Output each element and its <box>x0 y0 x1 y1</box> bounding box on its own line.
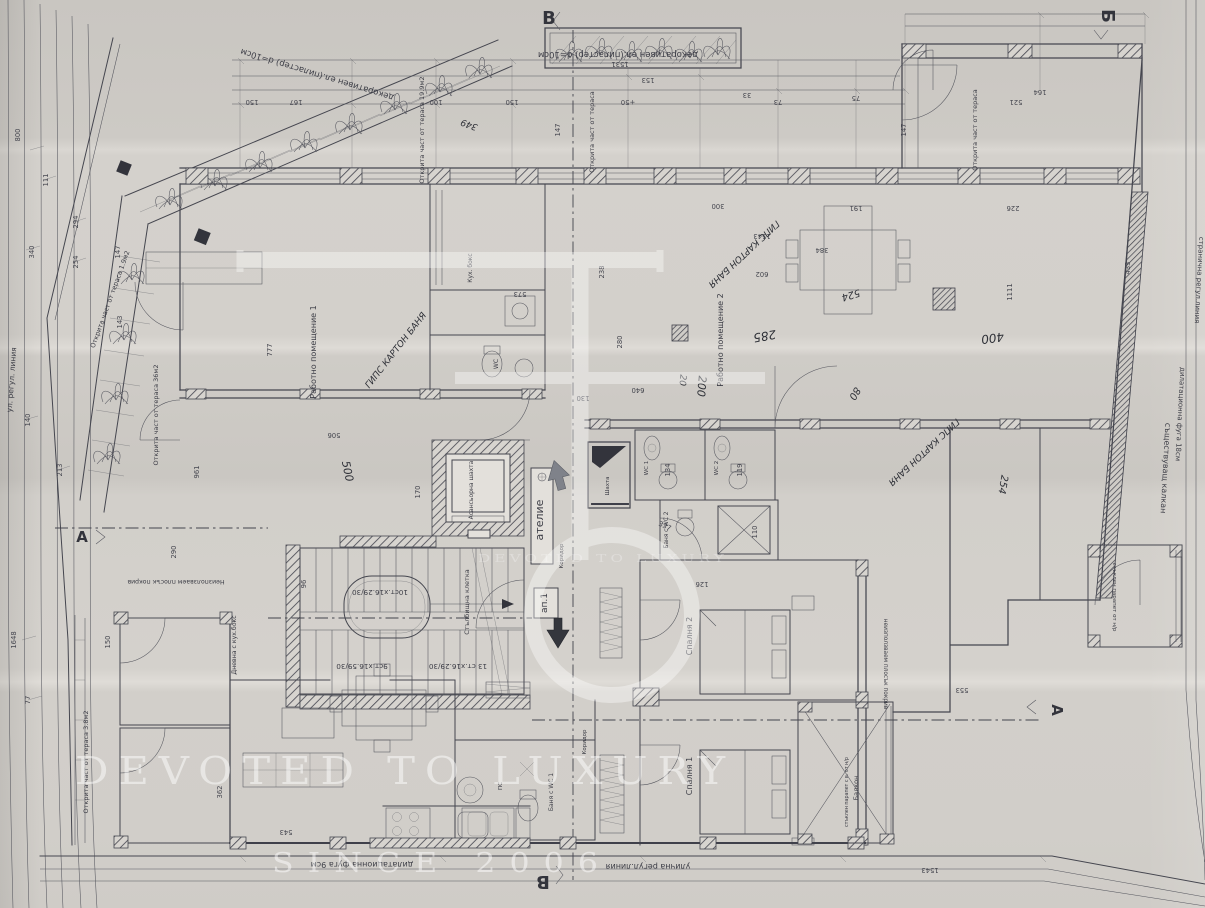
dim-text: 1648 <box>10 631 18 648</box>
dim-text: 134 <box>664 464 672 477</box>
dim-text: 111 <box>42 174 50 187</box>
hand-text: 285 <box>752 327 777 345</box>
top-right-wing <box>893 44 1142 192</box>
interior-walls <box>146 184 1110 440</box>
dim-text: 1543 <box>921 866 938 874</box>
lbl-text: Открита част от тераса <box>971 89 979 171</box>
dim-text: 167 <box>290 98 303 106</box>
section-marker-v-top: В <box>542 8 556 29</box>
dim-text: 226 <box>1007 204 1020 212</box>
dim-text: 506 <box>328 431 341 439</box>
dim-text: 100 <box>430 98 443 106</box>
watermark-echo: DEVOTED TO LUXURY <box>478 552 728 565</box>
lbl-text: Баня с WC 2 <box>664 511 670 548</box>
hand-text: 400 <box>980 329 1005 346</box>
dim-text: 164 <box>1034 88 1047 96</box>
lbl-text: неизползваем плосък покрив <box>882 619 888 710</box>
lbl-text: Балкон <box>852 776 860 801</box>
hand-text: 254 <box>995 474 1009 495</box>
section-marker-a-right: А <box>1048 704 1066 716</box>
rooms-left-bottom <box>75 612 232 848</box>
lbl-text: Открита част от тераса 36м2 <box>152 365 160 466</box>
dim-text: 294 <box>72 216 80 229</box>
dim-text: 777 <box>266 344 274 357</box>
dim-text: 521 <box>1010 98 1023 106</box>
watermark-line1: DEVOTED TO LUXURY <box>75 749 735 793</box>
dim-text: 147 <box>554 124 562 137</box>
lbl-text: ул. регул. линия <box>5 347 19 413</box>
dim-text: 602 <box>756 270 769 278</box>
scanned-floor-plan: 167150100150+507375164153153133521226191… <box>0 0 1205 908</box>
dim-text: 75 <box>852 94 861 102</box>
north-facade-wall <box>180 168 1140 184</box>
dim-text: +50 <box>621 98 635 106</box>
floor-plan-svg: 167150100150+507375164153153133521226191… <box>0 0 1205 908</box>
lbl-text: Асансьорна шахта <box>468 460 475 519</box>
dim-text: 110 <box>751 526 759 539</box>
lbl-text: Открита част от тераса 19.9м2 <box>418 76 426 183</box>
lbl-text: странична регул.линия <box>1193 237 1205 324</box>
lbl-text: улична регул.линия <box>606 862 691 871</box>
dim-text: 96 <box>300 580 308 589</box>
party-wall-calkan <box>1096 0 1205 880</box>
dim-text: 143 <box>116 316 124 329</box>
dim-text: 150 <box>246 98 259 106</box>
dim-text: 961 <box>193 466 201 479</box>
duct-shaft <box>588 442 630 508</box>
elevator-shaft <box>432 440 524 538</box>
dim-text: 150 <box>104 636 112 649</box>
dim-text: 553 <box>956 686 969 694</box>
lbl-text: стъклен парапет от н/р <box>1111 563 1117 632</box>
dim-text: 280 <box>616 336 624 349</box>
dim-text: 191 <box>850 204 863 212</box>
dim-text: 170 <box>414 486 422 499</box>
lbl-text: WC <box>493 359 500 369</box>
dim-text: 153 <box>642 76 655 84</box>
lbl-text: WC 1 <box>644 461 650 476</box>
lbl-text: съществуващ калкан <box>1159 423 1173 514</box>
watermark: DEVOTED TO LUXURY SINCE 2006 DEVOTED TO … <box>75 250 765 879</box>
watermark-line2: SINCE 2006 <box>272 848 612 879</box>
hand-text: 500 <box>339 460 356 483</box>
section-marker-b-topright: Б <box>1097 9 1118 23</box>
hand-text: ГИПС КАРТОН БАНЯ <box>706 218 781 289</box>
lbl-text: 10ст.х16.29/30 <box>352 588 408 597</box>
dim-text: 73 <box>774 98 783 106</box>
hand-text: 524 <box>840 286 861 302</box>
lbl-text: 13 ст.х16.29/30 <box>428 662 487 671</box>
dim-text: 1531 <box>611 60 628 68</box>
dim-text: 543 <box>280 828 293 836</box>
lbl-text: дилатационна фуга 18см <box>1174 367 1187 461</box>
dim-text: 800 <box>14 129 22 142</box>
dim-text: 300 <box>712 202 725 210</box>
lbl-text: Шахта <box>605 476 611 495</box>
lbl-text: стъклен парапет с в. от н/р <box>844 757 850 827</box>
lbl-text: декоративен ел.(пиластер) d=10см <box>538 49 698 59</box>
dim-text: 384 <box>816 246 829 254</box>
dim-text: 213 <box>56 464 64 477</box>
right-wing <box>893 428 1182 712</box>
dim-text: 147 <box>900 124 908 137</box>
entry-arrow-ap1 <box>547 618 569 648</box>
dim-text: 1111 <box>1006 283 1014 300</box>
dim-text: 290 <box>170 546 178 559</box>
hand-text: 80 <box>846 385 862 402</box>
dim-text: 573 <box>514 290 527 298</box>
dim-text: 33 <box>743 91 752 99</box>
lbl-text: Неизползваем плосък покрив <box>127 578 225 585</box>
dim-text: 77 <box>24 696 32 705</box>
dim-text: 140 <box>24 414 32 427</box>
lbl-text: Дневна с кух.бокс <box>230 615 238 675</box>
dim-text: 126 <box>696 580 709 588</box>
lbl-text: Открита част от тераса <box>588 91 596 173</box>
dim-text: 340 <box>28 246 36 259</box>
lbl-text: декоративен ел.(пиластер) d=10см <box>239 46 395 102</box>
planter-box-top <box>545 28 741 68</box>
lbl-text: Работно помещение 1 <box>309 305 318 398</box>
lbl-text: ателие <box>533 499 546 540</box>
lbl-text: WC 2 <box>714 461 720 476</box>
hand-text: 349 <box>459 116 479 131</box>
hand-text: ГИПС КАРТОН БАНЯ <box>364 311 429 391</box>
lbl-text: Стълбищна клетка <box>463 569 471 635</box>
dim-text: 119 <box>736 464 744 477</box>
dim-text: 640 <box>632 386 645 394</box>
lbl-text: 9ст.х16.59/30 <box>336 662 388 671</box>
dim-text: 433 <box>1124 262 1132 275</box>
dim-text: 254 <box>72 256 80 269</box>
section-marker-a-left: А <box>76 528 88 546</box>
dim-text: 150 <box>506 98 519 106</box>
